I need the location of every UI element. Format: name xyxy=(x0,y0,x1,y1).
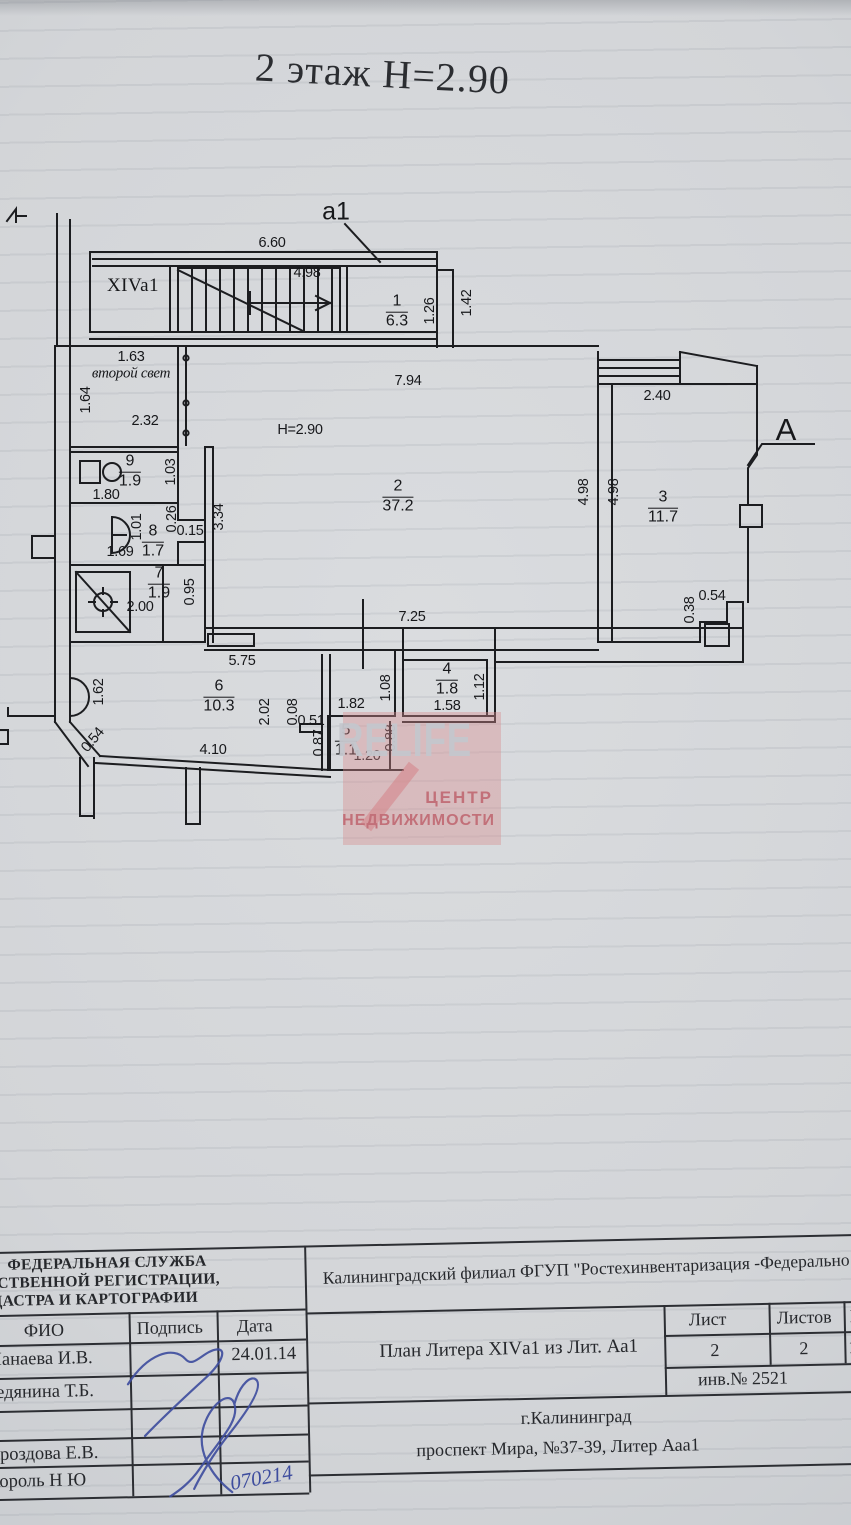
column xyxy=(740,505,762,527)
address-city: г.Калининград xyxy=(521,1406,632,1429)
dimension-label: 0.54 xyxy=(698,588,725,604)
dimension-label: 1.03 xyxy=(163,458,179,485)
room-label: 311.7 xyxy=(648,490,678,527)
dimension-label: 4.98 xyxy=(606,478,622,505)
watermark: RELIFE ЦЕНТР НЕДВИЖИМОСТИ xyxy=(343,712,501,845)
divider-line xyxy=(304,1246,311,1493)
dimension-label: 2.40 xyxy=(643,388,670,404)
room-area: 1.7 xyxy=(142,543,164,561)
dimension-label: 0.38 xyxy=(682,596,698,623)
room-label: 81.7 xyxy=(142,524,164,561)
divider-line xyxy=(307,1391,851,1405)
wall xyxy=(7,209,26,222)
room-number: 9 xyxy=(119,454,141,473)
table-row-name: Дроздова Е.В. xyxy=(0,1443,99,1466)
shower-diagonal xyxy=(76,572,130,632)
wall xyxy=(32,536,55,558)
wall xyxy=(55,642,70,722)
room-label: 610.3 xyxy=(203,679,234,716)
room-area: 1.9 xyxy=(148,585,170,603)
dimension-label: 2.32 xyxy=(131,413,158,429)
sheets-value: 2 xyxy=(799,1338,808,1359)
wall xyxy=(598,602,743,642)
agency-line-3: АДАСТРА И КАРТОГРАФИИ xyxy=(0,1289,198,1312)
dimension-label: 4.98 xyxy=(576,478,592,505)
table-row-name: Манаева И.В. xyxy=(0,1348,93,1371)
dimension-label: 4.10 xyxy=(199,742,226,758)
sheet-label: Лист xyxy=(689,1309,727,1331)
divider-line xyxy=(309,1463,851,1477)
wall xyxy=(57,214,70,346)
room-label: 91.9 xyxy=(119,454,141,491)
room-label: 16.3 xyxy=(386,294,408,331)
table-row-name: Редянина Т.Б. xyxy=(0,1381,94,1404)
signature-1 xyxy=(127,1349,224,1436)
dimension-label: 1.08 xyxy=(378,674,394,701)
dimension-label: 1.42 xyxy=(459,289,475,316)
dimension-label: 7.25 xyxy=(398,609,425,625)
dimension-label: 1.26 xyxy=(422,297,438,324)
watermark-line3: НЕДВИЖИМОСТИ xyxy=(342,812,495,830)
table-row-name: Король Н Ю xyxy=(0,1470,86,1493)
room-number: 8 xyxy=(142,524,164,543)
dimension-label: 1.80 xyxy=(92,487,119,503)
divider-line xyxy=(0,1234,851,1255)
wall xyxy=(205,628,743,650)
wall xyxy=(205,447,213,642)
room-label: 71.9 xyxy=(148,566,170,603)
dimension-label: 0.87 xyxy=(311,729,327,756)
watermark-line2: ЦЕНТР xyxy=(425,788,493,808)
dimension-label: H=2.90 xyxy=(277,422,322,438)
dimension-label: 0.95 xyxy=(182,578,198,605)
dimension-label: 7.94 xyxy=(394,373,421,389)
dimension-label: 4.98 xyxy=(293,265,320,281)
room-number: 3 xyxy=(648,490,678,509)
dimension-label: 5.75 xyxy=(228,653,255,669)
stair-diagonal xyxy=(178,270,303,331)
dimension-label: 1.82 xyxy=(337,696,364,712)
room-number: 7 xyxy=(148,566,170,585)
inventory-number: инв.№ 2521 xyxy=(698,1367,788,1390)
title-block: ФЕДЕРАЛЬНАЯ СЛУЖБА АРСТВЕННОЙ РЕГИСТРАЦИ… xyxy=(0,1231,851,1525)
room-area: 6.3 xyxy=(386,313,408,331)
axis-a1-leader xyxy=(345,224,380,262)
door-fixture xyxy=(70,678,89,716)
dimension-label: 3.34 xyxy=(211,503,227,530)
dimension-label: 1.63 xyxy=(117,349,144,365)
axis-label: а1 xyxy=(322,198,350,227)
room-area: 11.7 xyxy=(648,509,678,527)
dimension-label: 1.64 xyxy=(78,386,94,413)
divider-line xyxy=(664,1331,851,1337)
floor-plan-drawing xyxy=(0,0,851,1050)
divider-line xyxy=(663,1305,667,1395)
scanned-floorplan-page: 2 этаж Н=2.90 xyxy=(0,0,851,1525)
room-number: 6 xyxy=(203,679,234,698)
wall xyxy=(437,270,453,347)
dimension-label: 1.62 xyxy=(91,678,107,705)
room-number: 4 xyxy=(436,662,458,681)
sheet-value: 2 xyxy=(710,1340,719,1361)
wall xyxy=(340,268,347,332)
sheets-label: Листов xyxy=(777,1307,832,1329)
document-title: План Литера XIVа1 из Лит. Аа1 xyxy=(379,1336,638,1363)
window-band xyxy=(598,352,757,384)
axis-label: А xyxy=(776,412,797,448)
room-area: 10.3 xyxy=(203,698,234,716)
dimension-label: 6.60 xyxy=(258,235,285,251)
watermark-logo-text: RELIFE xyxy=(337,712,472,767)
wall xyxy=(743,366,757,662)
room-area: 1.8 xyxy=(436,681,458,699)
col-header-fio: ФИО xyxy=(24,1320,65,1342)
dimension-label: 0.51 xyxy=(297,713,324,729)
wall xyxy=(395,628,403,716)
room-label: 237.2 xyxy=(382,479,413,516)
dimension-label: 0.15 xyxy=(176,523,203,539)
room-label: 41.8 xyxy=(436,662,458,699)
dimension-label: 1.69 xyxy=(106,544,133,560)
organization-name: Калининградский филиал ФГУП "Ростехинвен… xyxy=(322,1249,849,1288)
wall-recess xyxy=(208,634,254,646)
building-letter-label: XIVa1 xyxy=(107,275,159,297)
wall xyxy=(96,756,330,777)
room-area: 1.9 xyxy=(119,473,141,491)
room-area: 37.2 xyxy=(382,498,413,516)
room-number: 1 xyxy=(386,294,408,313)
dimension-label: 2.02 xyxy=(257,698,273,725)
wc-fixture xyxy=(80,461,100,483)
signature-2 xyxy=(168,1398,237,1496)
address-street: проспект Мира, №37-39, Литер Ааа1 xyxy=(416,1434,700,1461)
window-band xyxy=(93,259,435,266)
room-number: 2 xyxy=(382,479,413,498)
wall xyxy=(0,708,55,744)
dimension-label: 1.12 xyxy=(472,673,488,700)
annotation-label: второй свет xyxy=(92,366,170,383)
